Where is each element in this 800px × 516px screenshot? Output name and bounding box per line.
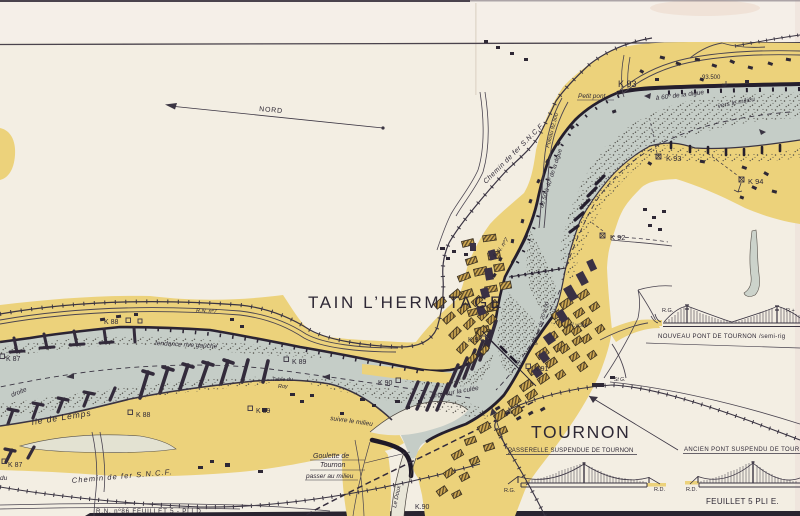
svg-text:NOUVEAU PONT DE TOURNON /: NOUVEAU PONT DE TOURNON /semi-rig bbox=[658, 334, 786, 340]
svg-text:K 87: K 87 bbox=[6, 356, 21, 363]
svg-text:St G.: St G. bbox=[614, 377, 625, 383]
svg-text:du: du bbox=[0, 475, 8, 482]
svg-text:K 87: K 87 bbox=[8, 462, 23, 469]
svg-text:K 9: K 9 bbox=[468, 337, 479, 344]
svg-text:PASSERELLE SUSPENDUE DE TOU: PASSERELLE SUSPENDUE DE TOURNON bbox=[508, 448, 634, 454]
svg-text:Roy: Roy bbox=[278, 384, 289, 390]
svg-text:K 89: K 89 bbox=[292, 359, 307, 366]
svg-text:R.D.: R.D. bbox=[654, 487, 665, 493]
svg-text:R.+: R.+ bbox=[786, 308, 795, 314]
svg-text:FEUILLET 5 PLI E.: FEUILLET 5 PLI E. bbox=[706, 497, 779, 506]
svg-text:K 88: K 88 bbox=[136, 412, 151, 419]
svg-text:K 93: K 93 bbox=[666, 154, 681, 163]
svg-text:Lycée: Lycée bbox=[572, 323, 589, 329]
svg-text:TOURNON: TOURNON bbox=[531, 422, 630, 442]
svg-text:R.D.: R.D. bbox=[686, 487, 697, 493]
svg-text:Table du: Table du bbox=[272, 377, 293, 383]
svg-text:Petit pont: Petit pont bbox=[578, 93, 607, 100]
svg-text:K 92: K 92 bbox=[610, 233, 625, 242]
svg-text:R.N. nº86 FEUILLET 5 - PLI D: R.N. nº86 FEUILLET 5 - PLI D bbox=[96, 508, 202, 515]
svg-text:TAIN L’HERMITAGE: TAIN L’HERMITAGE bbox=[308, 293, 504, 312]
svg-text:R.N. nº7: R.N. nº7 bbox=[196, 307, 218, 315]
svg-text:K 90: K 90 bbox=[378, 380, 393, 387]
svg-text:R.G.: R.G. bbox=[662, 308, 674, 314]
svg-text:K 91: K 91 bbox=[534, 366, 549, 373]
svg-text:R.G.: R.G. bbox=[504, 488, 516, 494]
svg-text:Tournon: Tournon bbox=[320, 462, 346, 469]
svg-text:K 94: K 94 bbox=[748, 177, 763, 186]
svg-text:K.90: K.90 bbox=[415, 504, 430, 511]
svg-text:93.500: 93.500 bbox=[702, 75, 721, 81]
svg-text:K 88: K 88 bbox=[104, 319, 119, 326]
svg-text:passer au milieu: passer au milieu bbox=[305, 473, 354, 480]
svg-text:ANCIEN PONT SUSPENDU DE TO: ANCIEN PONT SUSPENDU DE TOURNON bbox=[684, 447, 800, 453]
svg-text:Goulette de: Goulette de bbox=[313, 453, 349, 460]
svg-text:K 89: K 89 bbox=[256, 408, 271, 415]
svg-text:K 93: K 93 bbox=[618, 79, 637, 89]
